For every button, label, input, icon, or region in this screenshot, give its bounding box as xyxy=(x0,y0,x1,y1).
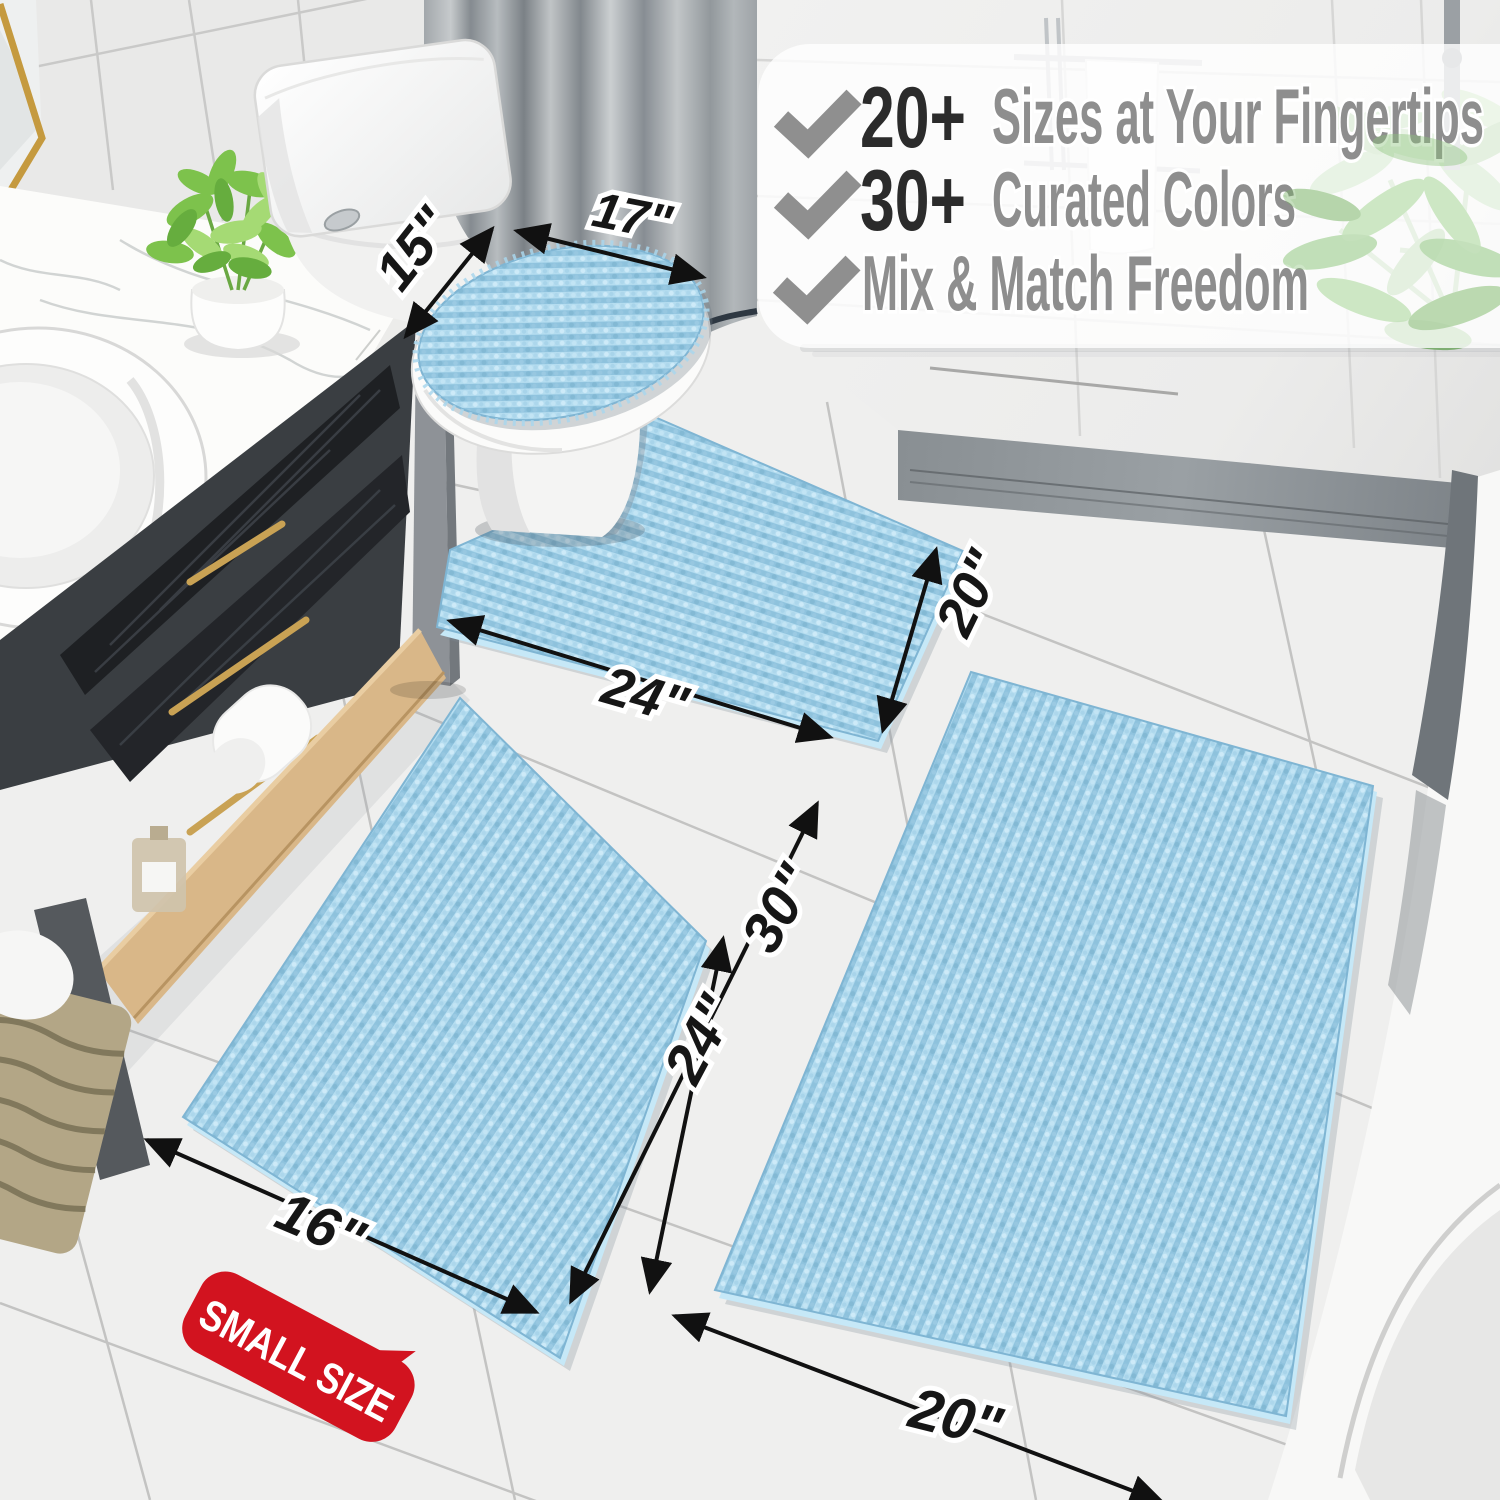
svg-text:Mix & Match Freedom: Mix & Match Freedom xyxy=(862,239,1309,327)
svg-text:30+: 30+ xyxy=(860,153,966,249)
svg-text:Curated Colors: Curated Colors xyxy=(992,155,1296,243)
svg-text:20+: 20+ xyxy=(860,70,966,166)
